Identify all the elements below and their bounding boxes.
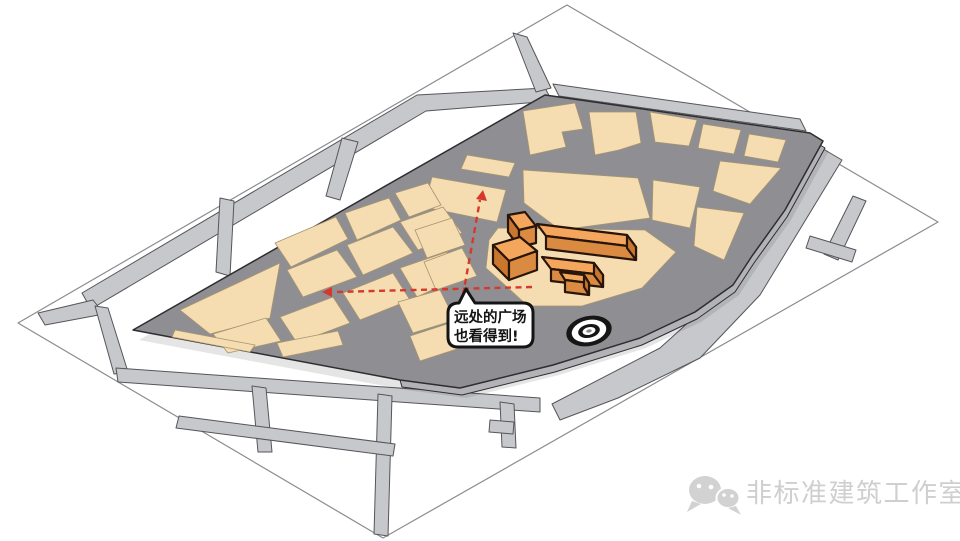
road [489,420,514,434]
wechat-eye [697,484,702,489]
wechat-eye [709,485,714,490]
speech-bubble-line2: 也看得到! [454,327,519,345]
wechat-small-bubble [717,488,740,508]
wechat-eye [730,494,734,498]
speech-bubble-line1: 远处的广场 [454,308,527,326]
studio-watermark: 非标准建筑工作室 [687,476,960,515]
watermark-text: 非标准建筑工作室 [746,479,960,509]
wechat-eye [722,493,726,497]
building-u-center [560,272,589,295]
axonometric-site-map: 远处的广场 也看得到! 非标准建筑工作室 [0,0,960,541]
site-plan-diagram: 远处的广场 也看得到! 非标准建筑工作室 [0,0,960,541]
wechat-icon [687,476,741,515]
